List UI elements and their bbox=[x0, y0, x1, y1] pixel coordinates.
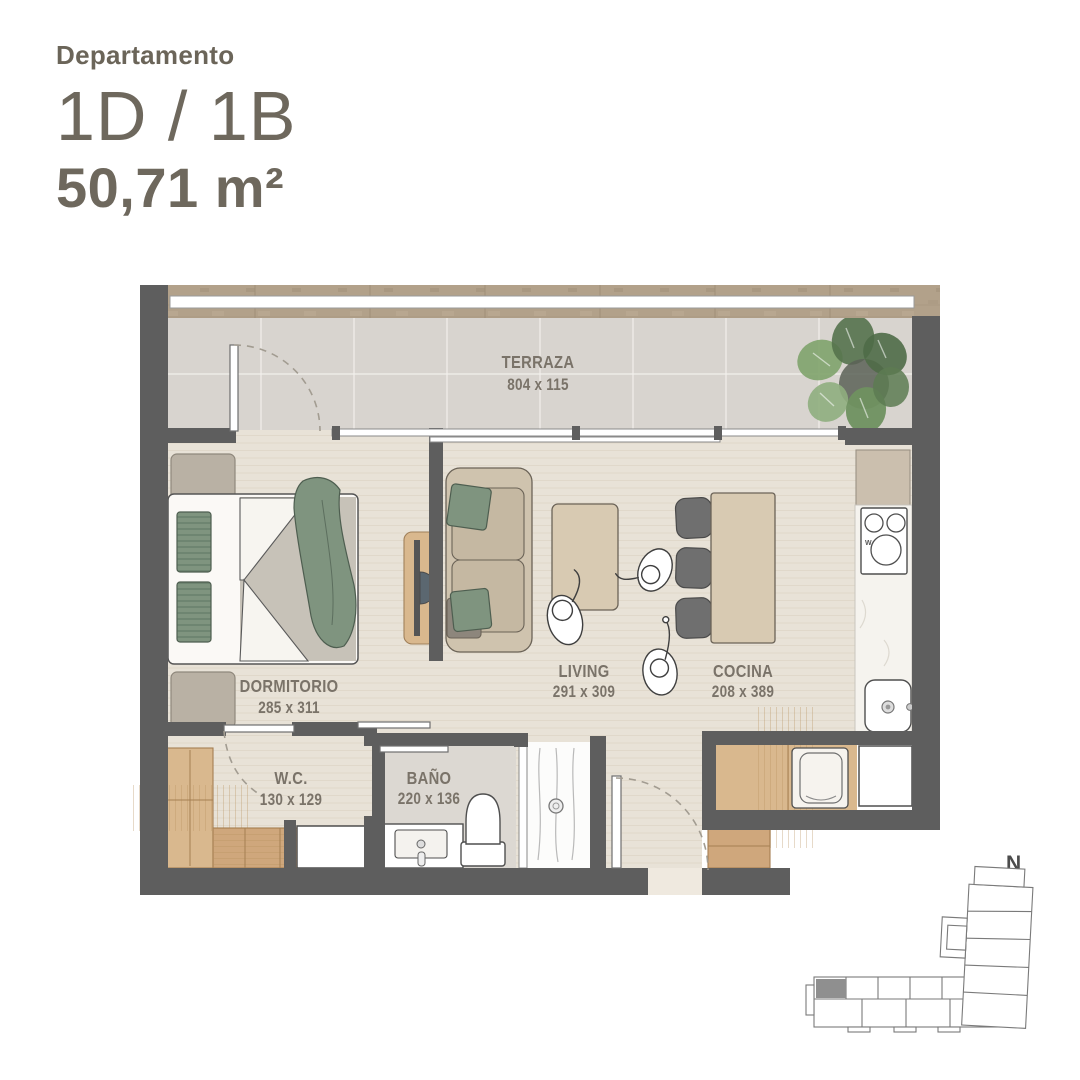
shower bbox=[519, 742, 590, 868]
washing-machine-icon bbox=[792, 748, 848, 808]
nightstand-bottom bbox=[171, 672, 235, 728]
shaft bbox=[859, 746, 912, 806]
sofa-pillow bbox=[446, 483, 491, 530]
cooktop-icon: W bbox=[861, 508, 907, 574]
shower-drain-icon bbox=[549, 799, 563, 813]
floorplan-page: Departamento 1D / 1B 50,71 m² bbox=[0, 0, 1080, 1080]
svg-text:220 x 136: 220 x 136 bbox=[398, 790, 460, 809]
dining-chair bbox=[675, 597, 712, 638]
kitchen-cabinet bbox=[856, 450, 910, 505]
svg-text:LIVING: LIVING bbox=[558, 662, 609, 682]
entry-door-leaf bbox=[612, 776, 621, 868]
sofa-pillow bbox=[450, 588, 492, 632]
svg-text:291 x 309: 291 x 309 bbox=[553, 683, 615, 702]
wc-window bbox=[297, 826, 365, 868]
kitchen-sink-icon bbox=[865, 680, 913, 732]
floor-plan-drawing: W bbox=[0, 0, 1080, 1080]
coffee-table bbox=[552, 504, 618, 610]
dining-set bbox=[675, 493, 775, 643]
svg-text:W.C.: W.C. bbox=[274, 769, 307, 789]
wc-door-leaf bbox=[224, 725, 294, 732]
bath-pocket-door-leaf bbox=[380, 746, 448, 752]
sofa bbox=[446, 468, 532, 652]
bath-pocket-door-leaf bbox=[358, 722, 430, 728]
dining-chair bbox=[675, 497, 713, 539]
bathroom-vanity bbox=[383, 824, 463, 868]
terrace-floor bbox=[168, 318, 912, 430]
svg-text:BAÑO: BAÑO bbox=[407, 767, 452, 789]
entry-cabinet bbox=[708, 826, 770, 868]
kitchen-counter: W bbox=[855, 450, 913, 732]
terrace-door-leaf bbox=[230, 345, 238, 431]
entry-threshold bbox=[648, 868, 702, 895]
svg-text:TERRAZA: TERRAZA bbox=[502, 353, 575, 373]
svg-text:285 x 311: 285 x 311 bbox=[258, 699, 320, 718]
svg-text:W: W bbox=[865, 540, 872, 547]
bed bbox=[168, 478, 358, 664]
terrace-railing bbox=[170, 296, 914, 308]
key-plan-unit-highlight bbox=[816, 979, 846, 998]
svg-text:COCINA: COCINA bbox=[713, 662, 773, 682]
key-plan bbox=[806, 865, 1034, 1032]
dining-table bbox=[711, 493, 775, 643]
pillow bbox=[177, 512, 211, 572]
svg-text:DORMITORIO: DORMITORIO bbox=[240, 677, 339, 697]
svg-text:130 x 129: 130 x 129 bbox=[260, 791, 322, 810]
shower-glass bbox=[519, 742, 527, 868]
dining-chair bbox=[675, 547, 712, 588]
room-label-bano: BAÑO 220 x 136 bbox=[398, 767, 460, 809]
pillow bbox=[177, 582, 211, 642]
svg-text:804 x 115: 804 x 115 bbox=[507, 376, 569, 395]
svg-text:208 x 389: 208 x 389 bbox=[712, 683, 774, 702]
